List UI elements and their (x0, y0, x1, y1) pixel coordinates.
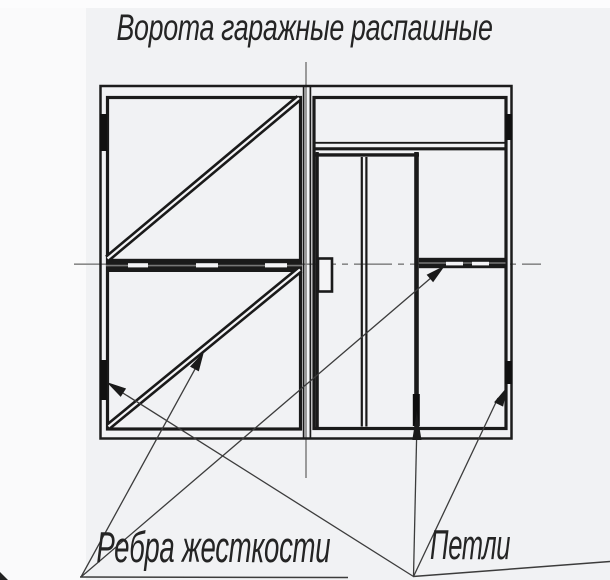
svg-text:Ребра жесткости: Ребра жесткости (96, 522, 330, 571)
svg-text:Петли: Петли (430, 523, 510, 569)
svg-text:Ворота гаражные распашные: Ворота гаражные распашные (117, 5, 493, 48)
